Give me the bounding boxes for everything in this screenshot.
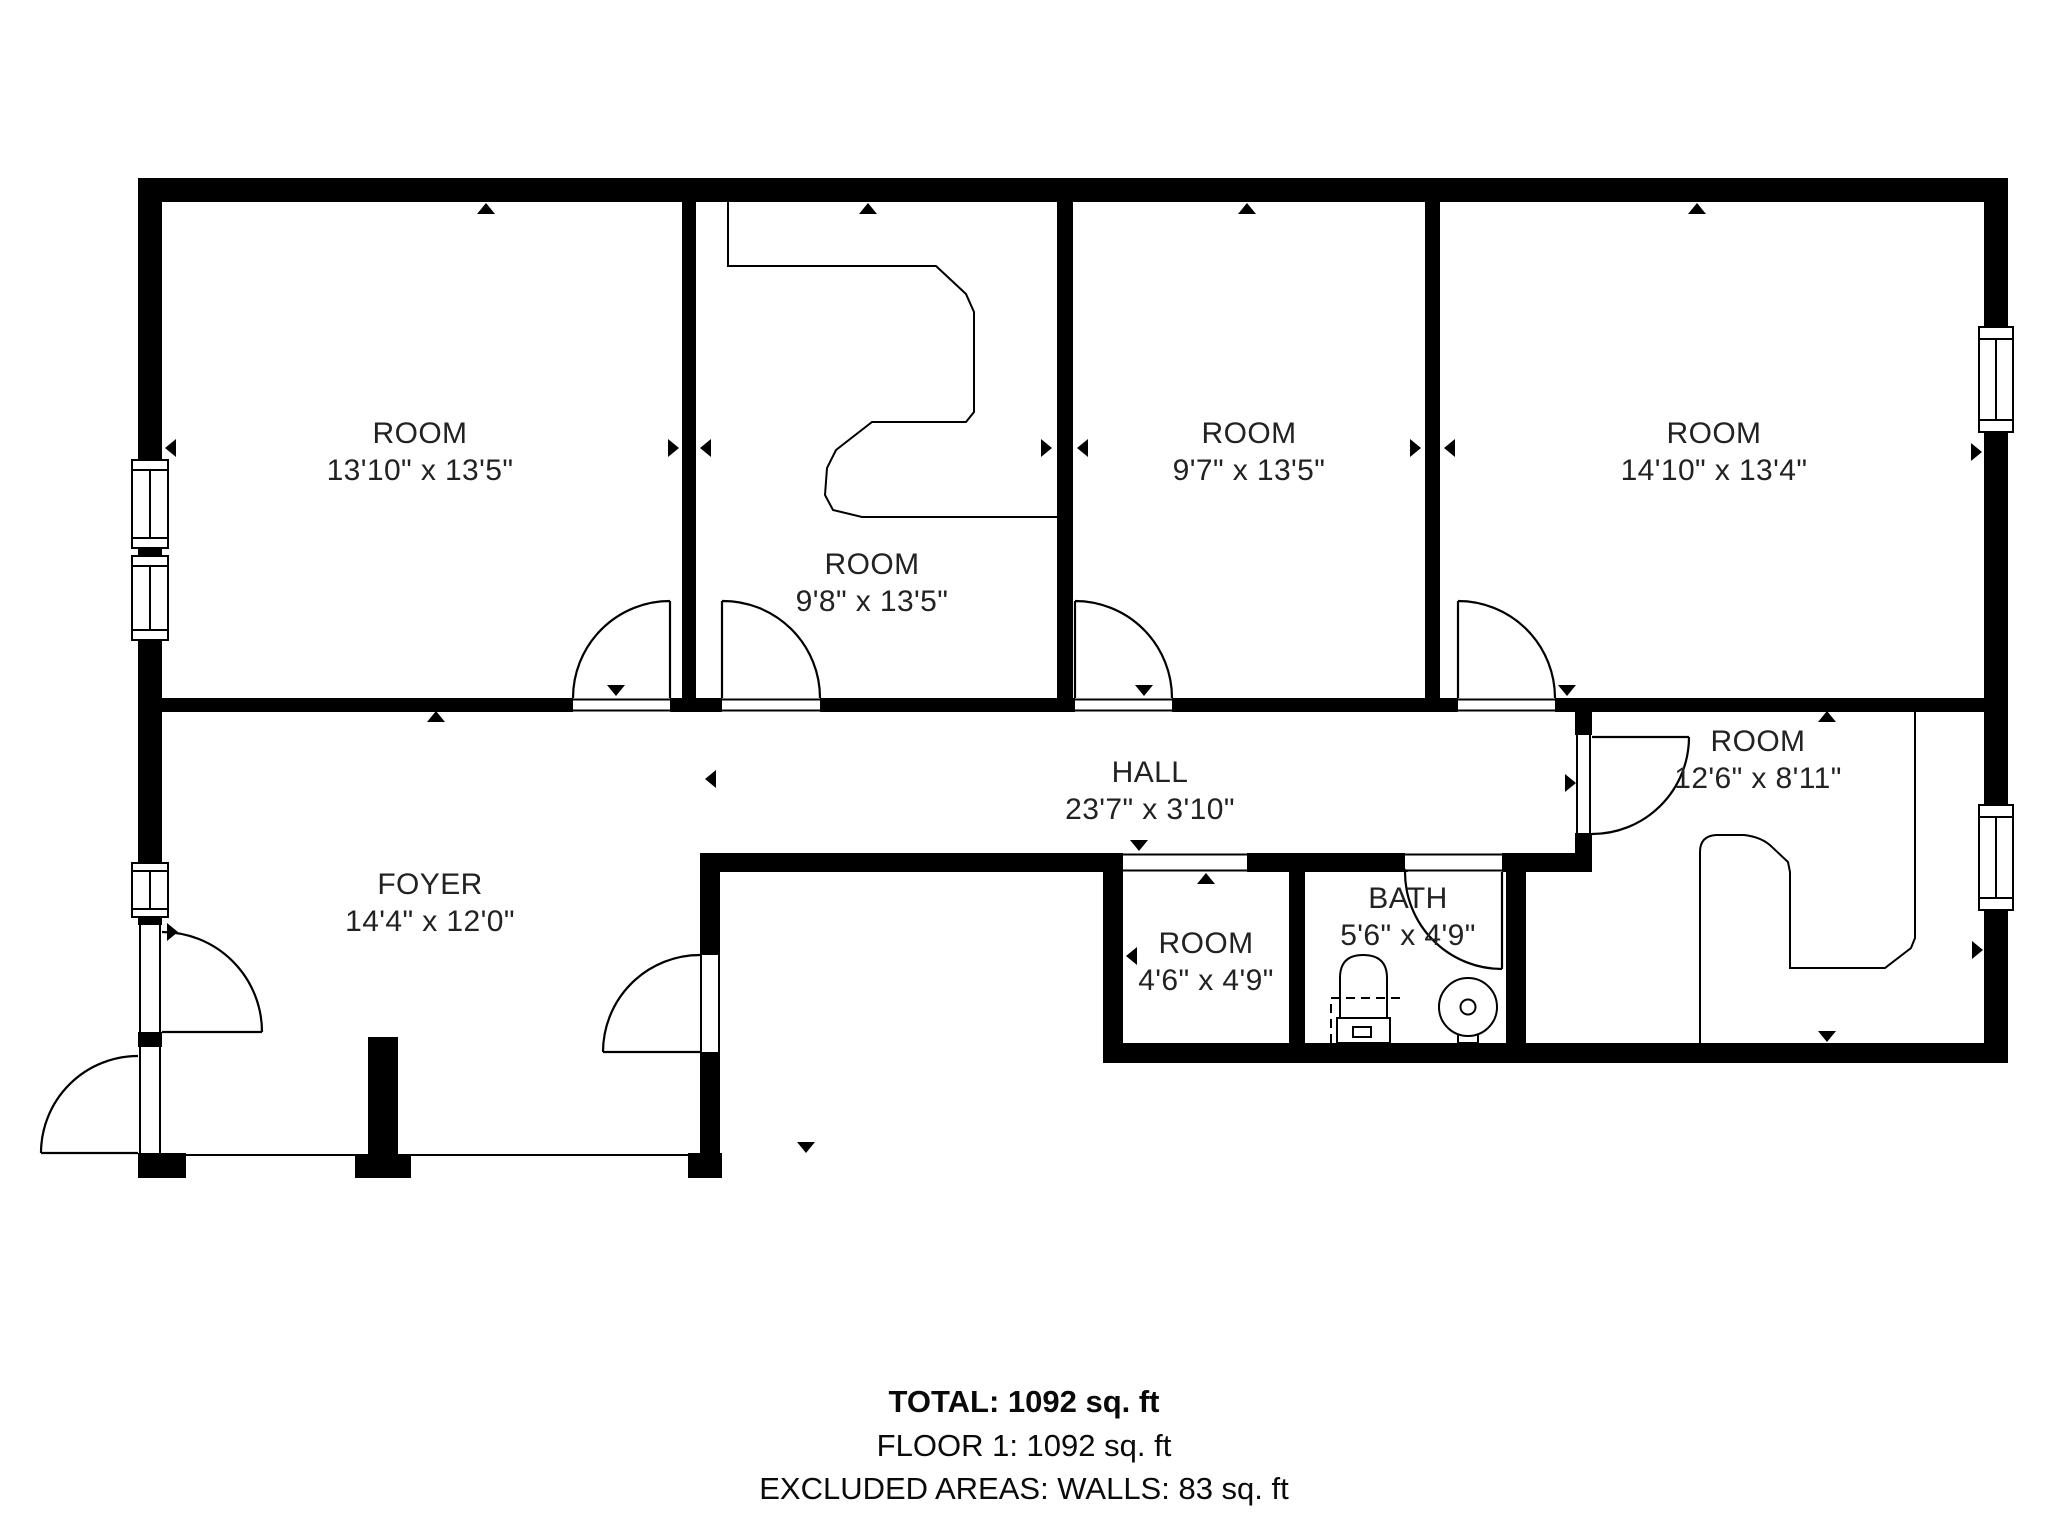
door-swing-icon-room-3 bbox=[1075, 601, 1172, 698]
room-dims: 12'6" x 8'11" bbox=[1674, 760, 1842, 797]
doorway-room-1 bbox=[573, 694, 670, 714]
window-icon-left-room1-b bbox=[132, 556, 168, 640]
room-label-right: ROOM 12'6" x 8'11" bbox=[1674, 723, 1842, 797]
room-dims: 14'4" x 12'0" bbox=[345, 903, 515, 940]
door-swing-icon-foyer-side bbox=[603, 955, 700, 1052]
room-name: BATH bbox=[1340, 880, 1476, 917]
doorway-room-right bbox=[1572, 735, 1595, 833]
walls bbox=[138, 178, 2008, 1178]
doorway-foyer-left bbox=[135, 925, 165, 1032]
window-icon-left-room1-a bbox=[132, 460, 168, 548]
room-name: ROOM bbox=[1173, 415, 1326, 452]
floor-area-text: FLOOR 1: 1092 sq. ft bbox=[877, 1428, 1172, 1464]
room-dims: 23'7" x 3'10" bbox=[1065, 791, 1235, 828]
room-label-bath: BATH 5'6" x 4'9" bbox=[1340, 880, 1476, 954]
door-swing-icon-room-1 bbox=[573, 601, 670, 698]
excluded-area-text: EXCLUDED AREAS: WALLS: 83 sq. ft bbox=[759, 1471, 1289, 1507]
room-dims: 14'10" x 13'4" bbox=[1621, 452, 1808, 489]
room-label-1: ROOM 13'10" x 13'5" bbox=[327, 415, 514, 489]
room-label-foyer: FOYER 14'4" x 12'0" bbox=[345, 866, 515, 940]
room-name: ROOM bbox=[1138, 925, 1274, 962]
room-name: HALL bbox=[1065, 754, 1235, 791]
doorway-foyer-entry bbox=[135, 1047, 165, 1153]
door-swing-icon-room-4 bbox=[1458, 601, 1555, 698]
pillar-icon bbox=[355, 1037, 411, 1178]
doorway-room-2 bbox=[722, 694, 820, 714]
window-icon-left-foyer bbox=[132, 863, 168, 917]
closet-outline-icon bbox=[728, 202, 1057, 517]
doorway-foyer-side bbox=[697, 955, 723, 1052]
toilet-icon bbox=[1331, 955, 1406, 1043]
door-swing-icon-foyer-entry bbox=[41, 1056, 138, 1153]
room-label-hall: HALL 23'7" x 3'10" bbox=[1065, 754, 1235, 828]
room-name: ROOM bbox=[1674, 723, 1842, 760]
floor-plan-page: ROOM 13'10" x 13'5" ROOM 9'8" x 13'5" RO… bbox=[0, 0, 2048, 1536]
doorway-room-small-opening bbox=[1123, 850, 1247, 875]
fixtures bbox=[728, 202, 1915, 1043]
room-dims: 13'10" x 13'5" bbox=[327, 452, 514, 489]
room-name: ROOM bbox=[1621, 415, 1808, 452]
room-dims: 9'7" x 13'5" bbox=[1173, 452, 1326, 489]
window-icon-right-room-right bbox=[1979, 805, 2013, 910]
doors bbox=[41, 601, 1689, 1153]
door-swing-icon-foyer-left bbox=[162, 932, 262, 1032]
room-name: FOYER bbox=[345, 866, 515, 903]
room-dims: 4'6" x 4'9" bbox=[1138, 962, 1274, 999]
window-icon-right-room4 bbox=[1979, 327, 2013, 432]
room-dims: 9'8" x 13'5" bbox=[796, 583, 949, 620]
room-dims: 5'6" x 4'9" bbox=[1340, 917, 1476, 954]
room-label-2: ROOM 9'8" x 13'5" bbox=[796, 546, 949, 620]
sink-icon bbox=[1439, 978, 1497, 1043]
room-name: ROOM bbox=[796, 546, 949, 583]
room-label-small: ROOM 4'6" x 4'9" bbox=[1138, 925, 1274, 999]
room-label-4: ROOM 14'10" x 13'4" bbox=[1621, 415, 1808, 489]
total-area-text: TOTAL: 1092 sq. ft bbox=[888, 1384, 1159, 1420]
doorway-room-3 bbox=[1075, 694, 1172, 714]
doorway-room-4 bbox=[1458, 694, 1555, 714]
doorway-bath bbox=[1405, 850, 1502, 875]
room-name: ROOM bbox=[327, 415, 514, 452]
room-label-3: ROOM 9'7" x 13'5" bbox=[1173, 415, 1326, 489]
